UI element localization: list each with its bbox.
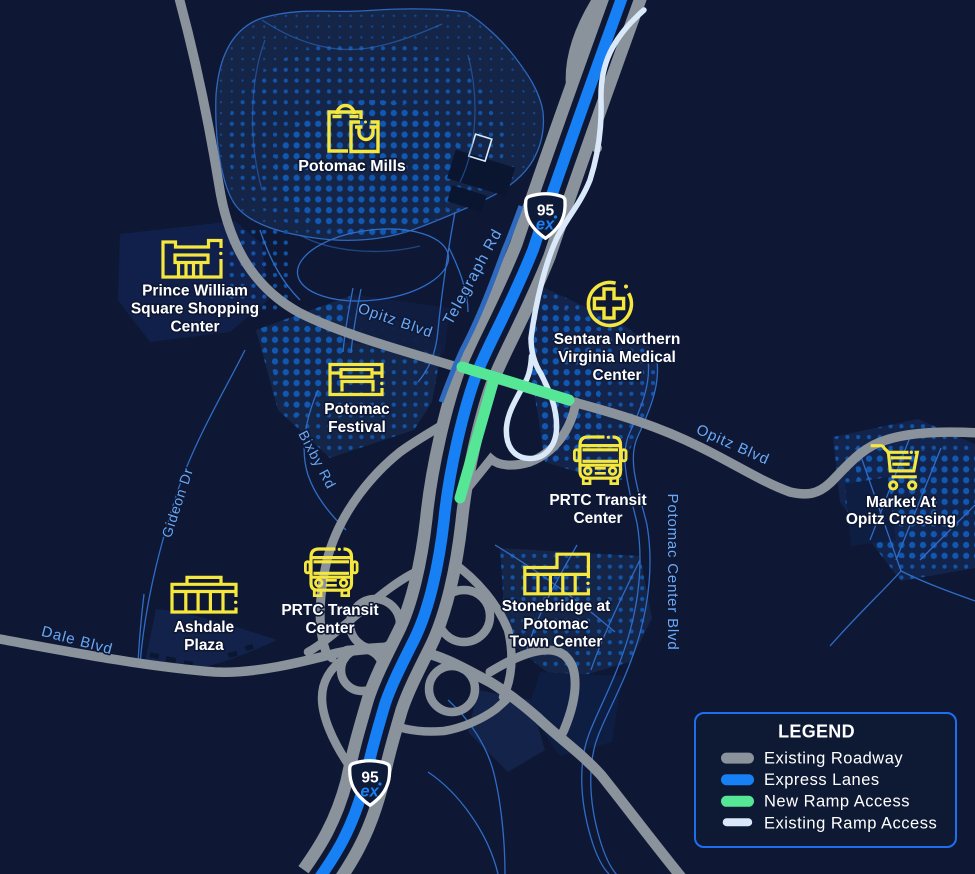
svg-text:Sentara Northern: Sentara Northern [554,331,681,348]
svg-text:Center: Center [170,319,219,336]
svg-text:Potomac Center Blvd: Potomac Center Blvd [664,494,681,651]
svg-text:New Ramp Access: New Ramp Access [764,793,910,811]
svg-text:Existing Ramp Access: Existing Ramp Access [764,814,937,832]
svg-text:Potomac Mills: Potomac Mills [298,158,406,175]
svg-text:Market At: Market At [866,494,936,511]
svg-text:ex: ex [536,216,555,234]
svg-text:ex: ex [360,783,379,801]
svg-text:Express Lanes: Express Lanes [764,771,880,789]
svg-text:Potomac: Potomac [324,401,390,418]
svg-text:Center: Center [592,367,641,384]
svg-text:Opitz Crossing: Opitz Crossing [846,511,956,528]
svg-text:Virginia Medical: Virginia Medical [558,349,676,366]
svg-text:LEGEND: LEGEND [778,722,855,742]
svg-text:Festival: Festival [328,419,386,436]
svg-text:Town Center: Town Center [510,634,603,651]
svg-text:PRTC Transit: PRTC Transit [549,492,646,509]
svg-text:Square Shopping: Square Shopping [131,301,259,318]
svg-text:Ashdale: Ashdale [174,619,235,636]
svg-text:PRTC Transit: PRTC Transit [281,602,378,619]
svg-text:Center: Center [573,510,622,527]
svg-text:Existing Roadway: Existing Roadway [764,750,903,768]
svg-text:Center: Center [305,620,354,637]
svg-text:Potomac: Potomac [523,616,589,633]
svg-text:Prince William: Prince William [142,283,248,300]
svg-text:Stonebridge at: Stonebridge at [502,598,611,615]
svg-text:Plaza: Plaza [184,637,224,654]
